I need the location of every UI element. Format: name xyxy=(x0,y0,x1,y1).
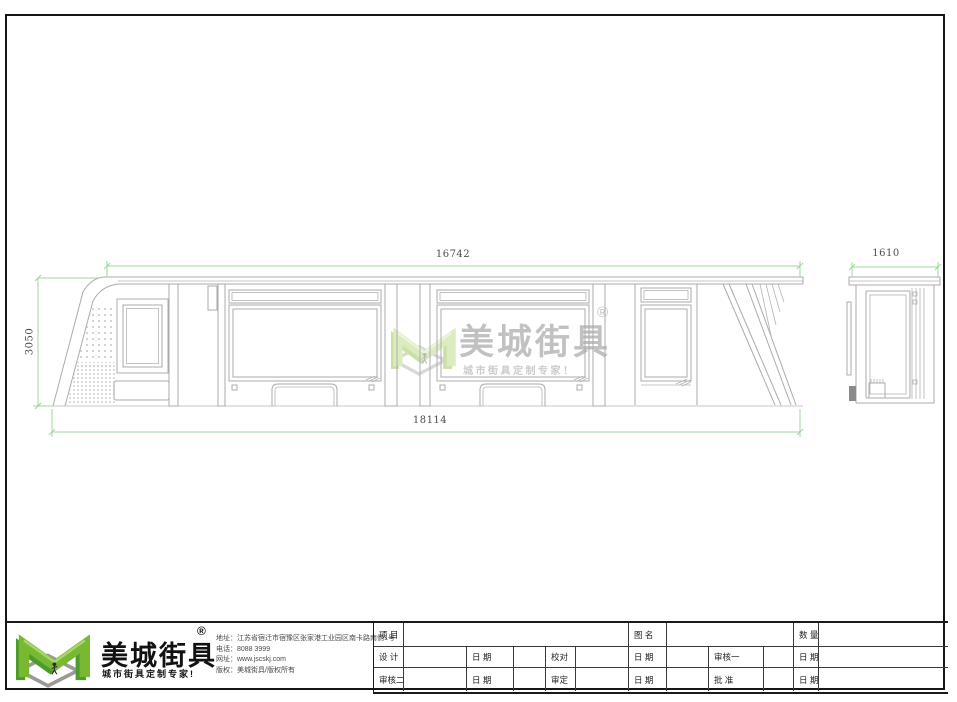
title-block-table: 项 目 图 名 数 量 设 计 日 期 校对 日 期 审核一 日 期 审核二 日… xyxy=(373,621,948,694)
table-row: 项 目 图 名 数 量 xyxy=(374,623,948,647)
contact-phone: 电话：8088 3999 xyxy=(216,645,376,656)
cell-date5-label: 日 期 xyxy=(629,668,667,691)
cell-drawing-name-label: 图 名 xyxy=(629,623,667,646)
cell-design-label: 设 计 xyxy=(374,647,404,667)
cell-date2-label: 日 期 xyxy=(629,647,667,667)
cell-approve-value xyxy=(764,668,794,691)
cell-date2-value xyxy=(667,647,709,667)
cell-proofread-value xyxy=(576,647,629,667)
cell-date4-label: 日 期 xyxy=(467,668,514,691)
cell-approve-label: 批 准 xyxy=(709,668,764,691)
cell-proofread-label: 校对 xyxy=(546,647,576,667)
company-tagline: 城市街具定制专家! xyxy=(102,667,195,680)
company-contact: 地址：江苏省宿迁市宿豫区张家港工业园区南卡路南侧1号 电话：8088 3999 … xyxy=(216,634,376,676)
table-row: 审核二 日 期 审定 日 期 批 准 日 期 xyxy=(374,668,948,691)
cell-verify-label: 审定 xyxy=(546,668,576,691)
cell-project-label: 项 目 xyxy=(374,623,404,646)
cell-drawing-name-value xyxy=(667,623,794,646)
company-logo-m-icon xyxy=(16,626,96,688)
cell-quantity-label: 数 量 xyxy=(794,623,819,646)
page-frame xyxy=(5,14,945,690)
contact-address: 地址：江苏省宿迁市宿豫区张家港工业园区南卡路南侧1号 xyxy=(216,634,376,645)
company-registered-icon: ® xyxy=(197,624,206,638)
cell-verify-value xyxy=(576,668,629,691)
cell-date1-label: 日 期 xyxy=(467,647,514,667)
cell-quantity-value xyxy=(819,623,948,646)
title-block-logo-section: 美城街具 ® 城市街具定制专家! 地址：江苏省宿迁市宿豫区张家港工业园区南卡路南… xyxy=(5,621,373,690)
table-row: 设 计 日 期 校对 日 期 审核一 日 期 xyxy=(374,647,948,668)
cell-date3-value xyxy=(819,647,948,667)
cell-review2-value xyxy=(404,668,467,691)
cell-project-value xyxy=(404,623,629,646)
cell-date6-label: 日 期 xyxy=(794,668,819,691)
contact-copyright: 版权：美城街具/版权所有 xyxy=(216,666,376,677)
cell-date4-value xyxy=(514,668,546,691)
cell-review1-label: 审核一 xyxy=(709,647,764,667)
cell-date6-value xyxy=(819,668,948,691)
cell-review2-label: 审核二 xyxy=(374,668,404,691)
cell-review1-value xyxy=(764,647,794,667)
contact-website: 网址：www.jscskj.com xyxy=(216,655,376,666)
cell-date1-value xyxy=(514,647,546,667)
drawing-sheet: 美城街具 ® 城市街具定制专家！ xyxy=(0,0,957,702)
cell-date3-label: 日 期 xyxy=(794,647,819,667)
cell-date5-value xyxy=(667,668,709,691)
cell-design-value xyxy=(404,647,467,667)
